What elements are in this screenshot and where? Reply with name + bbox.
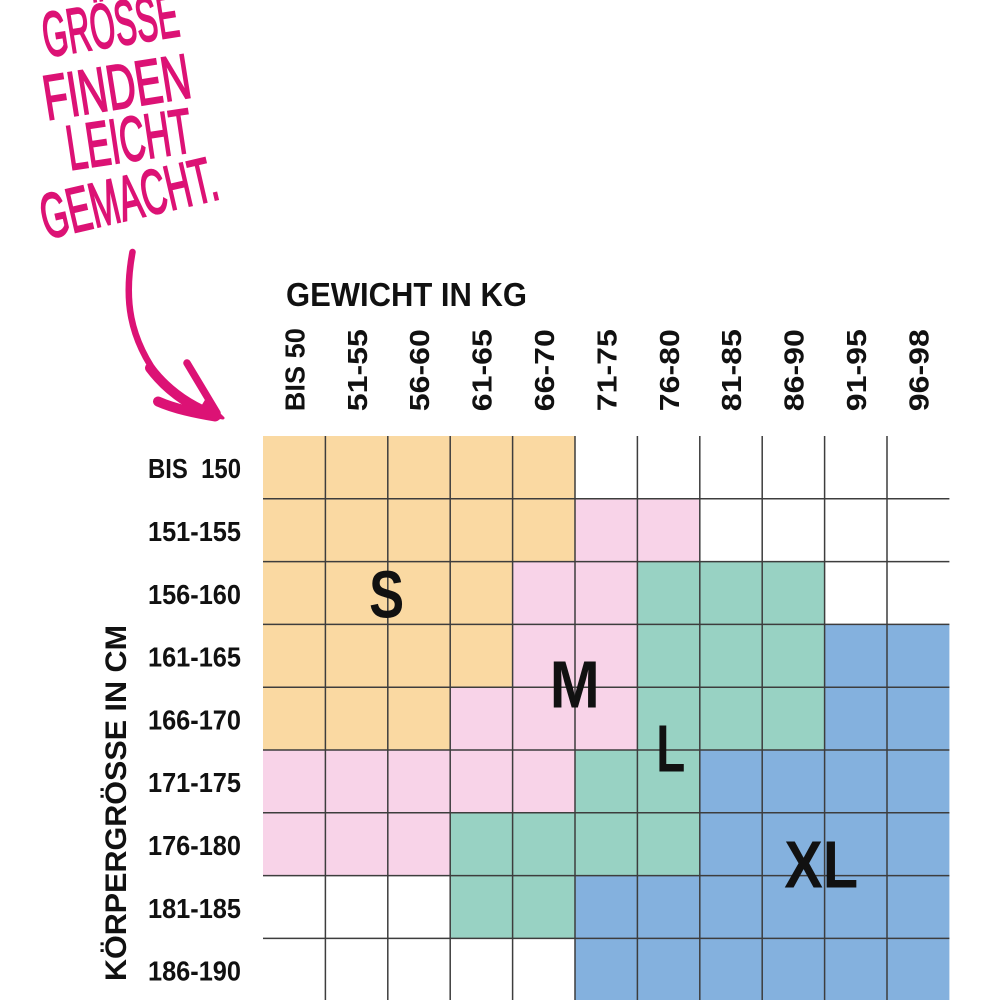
svg-text:151-155: 151-155 (148, 516, 241, 547)
svg-text:96-98: 96-98 (903, 329, 934, 411)
svg-text:66-70: 66-70 (529, 329, 560, 411)
svg-text:186-190: 186-190 (148, 956, 241, 987)
svg-text:91-95: 91-95 (841, 329, 872, 411)
svg-text:BIS 50: BIS 50 (279, 328, 310, 411)
svg-text:51-55: 51-55 (342, 329, 373, 411)
svg-text:181-185: 181-185 (148, 893, 241, 924)
svg-text:171-175: 171-175 (148, 767, 241, 798)
svg-text:81-85: 81-85 (716, 329, 747, 411)
svg-text:BIS 150: BIS 150 (148, 453, 241, 484)
svg-text:166-170: 166-170 (148, 704, 241, 735)
svg-text:XL: XL (784, 827, 858, 902)
svg-text:GEWICHT IN KG: GEWICHT IN KG (286, 277, 527, 314)
svg-text:L: L (656, 712, 685, 787)
svg-text:76-80: 76-80 (654, 329, 685, 411)
svg-text:S: S (369, 557, 404, 632)
svg-text:71-75: 71-75 (591, 329, 622, 411)
svg-text:161-165: 161-165 (148, 642, 241, 673)
svg-text:KÖRPERGRÖSSE IN CM: KÖRPERGRÖSSE IN CM (100, 625, 133, 981)
svg-text:176-180: 176-180 (148, 830, 241, 861)
svg-text:156-160: 156-160 (148, 579, 241, 610)
svg-text:56-60: 56-60 (404, 329, 435, 411)
svg-text:M: M (550, 648, 600, 723)
svg-text:61-65: 61-65 (467, 329, 498, 411)
svg-text:86-90: 86-90 (779, 329, 810, 411)
